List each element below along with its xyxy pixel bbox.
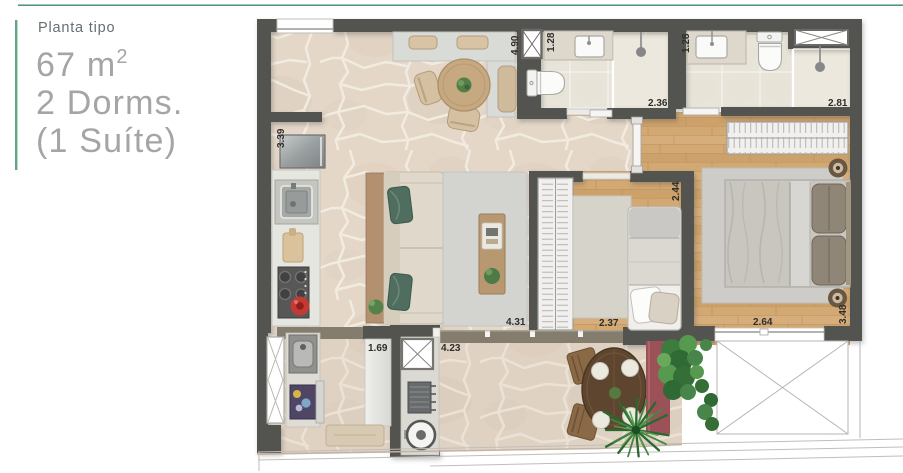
svg-text:(1 Suíte): (1 Suíte) xyxy=(36,122,177,160)
svg-text:4.90: 4.90 xyxy=(510,35,521,55)
svg-text:2 Dorms.: 2 Dorms. xyxy=(36,84,184,122)
svg-text:1.28: 1.28 xyxy=(546,32,557,52)
svg-text:4.31: 4.31 xyxy=(506,317,526,328)
svg-text:1.69: 1.69 xyxy=(368,343,388,354)
svg-text:2.37: 2.37 xyxy=(599,318,619,329)
svg-text:3.39: 3.39 xyxy=(276,128,287,148)
svg-text:2.64: 2.64 xyxy=(753,317,773,328)
svg-text:67 m2: 67 m2 xyxy=(36,46,129,84)
svg-text:1.28: 1.28 xyxy=(681,33,692,53)
svg-text:2.81: 2.81 xyxy=(828,98,848,109)
svg-text:Planta tipo: Planta tipo xyxy=(38,20,115,36)
svg-text:2.36: 2.36 xyxy=(648,98,668,109)
svg-text:4.23: 4.23 xyxy=(441,343,461,354)
svg-text:2.44: 2.44 xyxy=(671,181,682,201)
svg-text:3.48: 3.48 xyxy=(838,304,849,324)
